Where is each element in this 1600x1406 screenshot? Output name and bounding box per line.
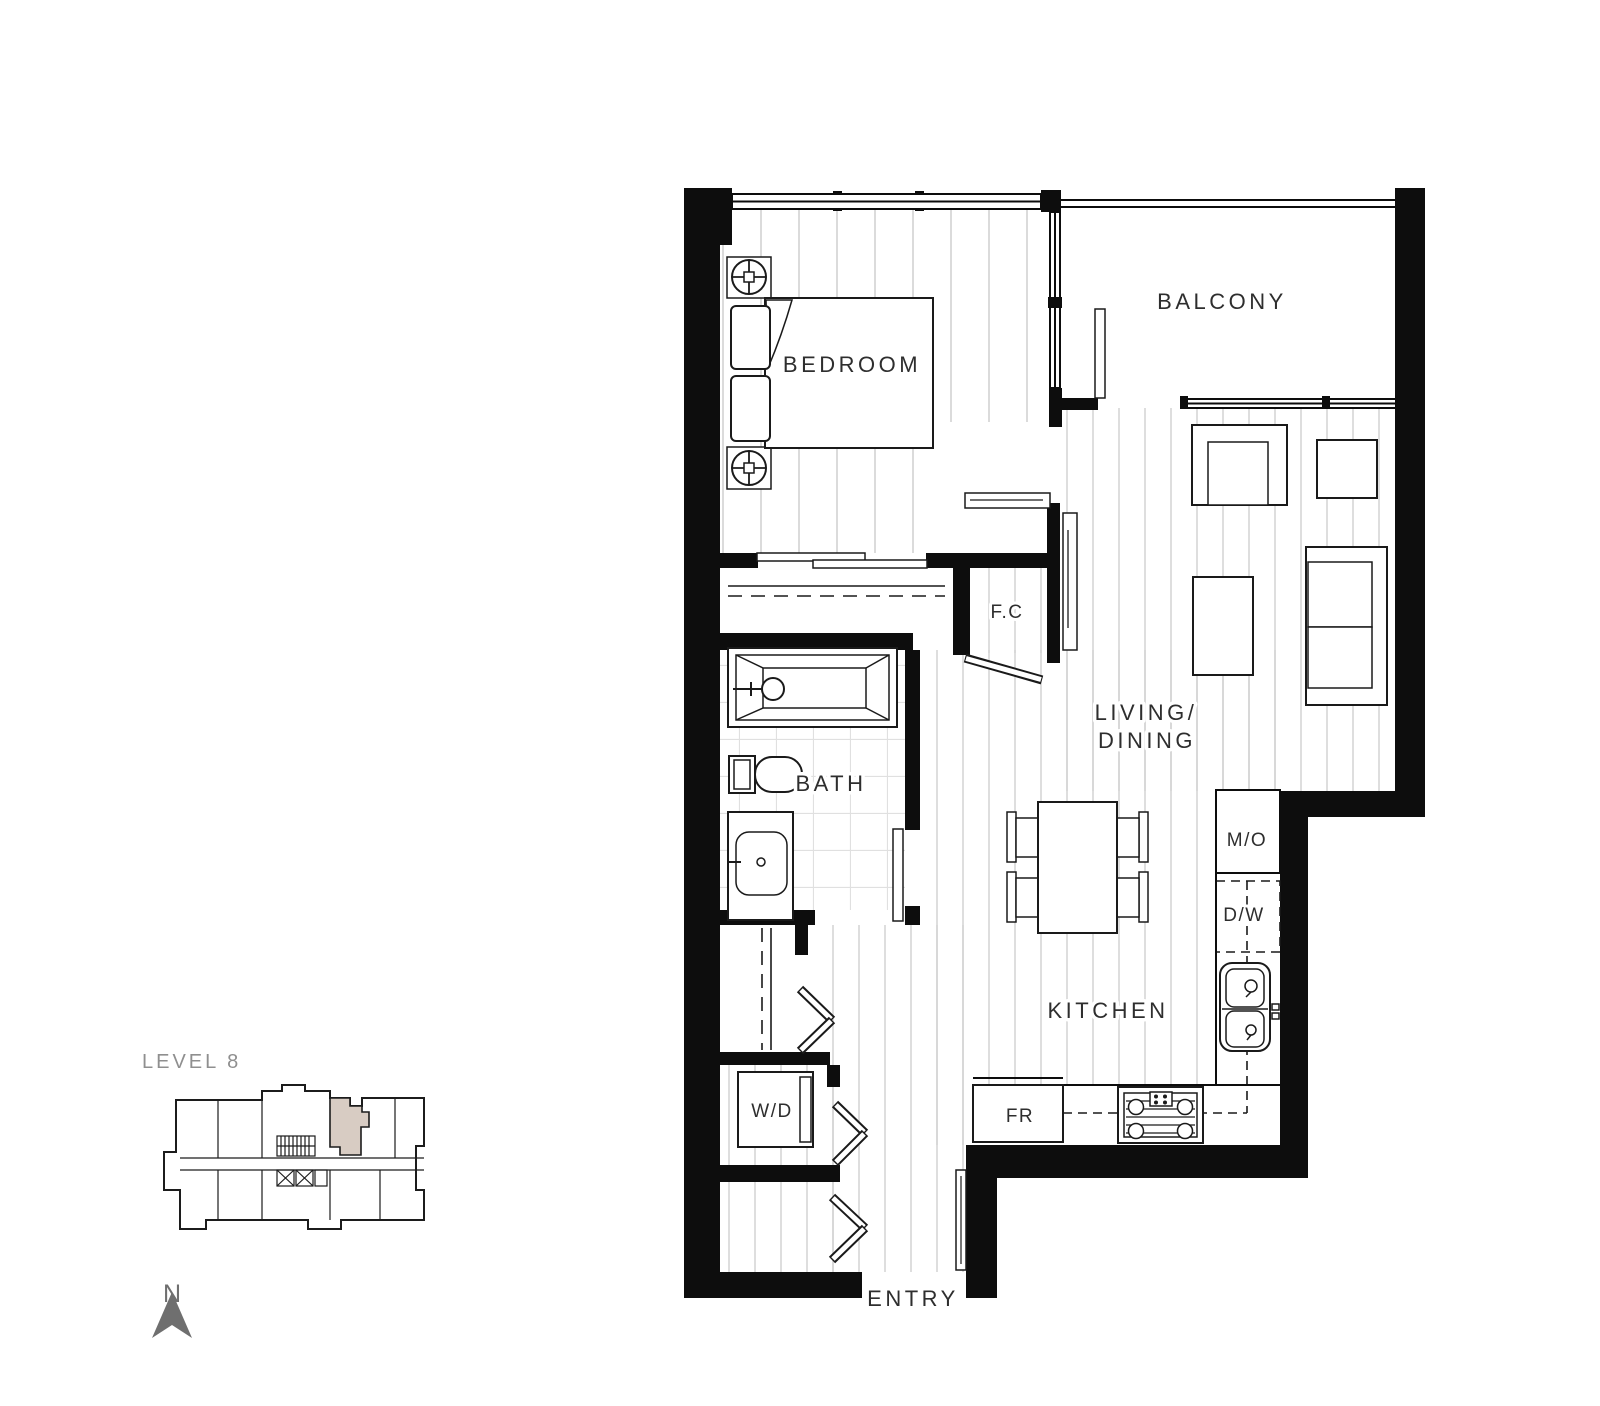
dining-table <box>1038 802 1117 933</box>
closet-bypass-door-2 <box>813 560 927 568</box>
balcony-sliding-panel <box>1095 309 1105 398</box>
pillow <box>731 306 770 369</box>
bedroom-bottom-wall-left <box>684 553 758 568</box>
wd-top-wall <box>684 1052 830 1065</box>
washer-dryer-label: W/D <box>751 1101 792 1122</box>
wd-bottom-wall <box>684 1165 840 1182</box>
pillow <box>731 376 770 441</box>
dining-chair <box>1139 812 1148 862</box>
balcony-door-stub <box>1049 398 1098 410</box>
kitchen-sink <box>1220 963 1279 1051</box>
divider-window-mullion <box>1048 297 1062 308</box>
left-exterior-wall <box>684 188 720 1298</box>
nightstand-lamp-bottom <box>727 447 771 489</box>
coffee-table <box>1193 577 1253 675</box>
key-plan-outline <box>164 1085 424 1229</box>
sofa <box>1306 547 1387 705</box>
bath-right-wall <box>905 650 920 830</box>
living-label-line1: LIVING/ <box>1095 700 1198 725</box>
balcony-label: BALCONY <box>1157 289 1287 314</box>
dining-chair <box>1007 872 1016 922</box>
gas-cooktop <box>1118 1087 1203 1143</box>
armchair <box>1192 425 1287 505</box>
nightstand-lamp-top <box>727 257 771 298</box>
floorplan-drawing: BEDROOM BALCONY F.C LIVING/ DINING BATH … <box>0 0 1600 1406</box>
kitchen-bottom-wall <box>968 1145 1308 1178</box>
living-window-jamb <box>1180 396 1188 409</box>
key-plan-title: LEVEL 8 <box>142 1051 241 1073</box>
bath-door-leaf <box>893 829 903 921</box>
bathtub <box>728 648 897 727</box>
bath-door-jamb <box>905 906 920 925</box>
faucet-icon <box>1272 1004 1279 1010</box>
microwave-label: M/O <box>1227 830 1267 851</box>
right-exterior-wall <box>1395 188 1425 817</box>
side-table <box>1317 440 1377 498</box>
dining-chair <box>1139 872 1148 922</box>
hall-closet-jamb <box>795 925 808 955</box>
bedroom-label: BEDROOM <box>783 352 921 377</box>
floorplan-page: BEDROOM BALCONY F.C LIVING/ DINING BATH … <box>0 0 1600 1406</box>
entry-bottom-wall <box>684 1272 862 1298</box>
bedroom-bottom-wall-right <box>926 553 1050 568</box>
kitchen-right-wall <box>1280 791 1308 1178</box>
fc-sliding-panel <box>1063 513 1077 650</box>
kitchen-label: KITCHEN <box>1047 998 1168 1023</box>
fc-right-wall <box>1047 503 1060 663</box>
toilet <box>729 756 802 793</box>
vanity-sink <box>728 812 793 920</box>
entry-label: ENTRY <box>867 1286 959 1311</box>
bath-label: BATH <box>795 771 866 796</box>
top-left-column <box>684 188 732 245</box>
closet-divider-wall <box>953 565 970 655</box>
living-label-line2: DINING <box>1098 728 1196 753</box>
dining-chair <box>1007 812 1016 862</box>
entry-side-wall <box>966 1145 997 1298</box>
washer-dryer-door <box>800 1077 811 1142</box>
fridge-label: FR <box>1006 1106 1034 1127</box>
fc-label: F.C <box>991 602 1024 623</box>
dishwasher-label: D/W <box>1223 905 1264 926</box>
wd-jamb <box>827 1065 840 1087</box>
bedroom-window-end-post <box>1041 190 1061 212</box>
